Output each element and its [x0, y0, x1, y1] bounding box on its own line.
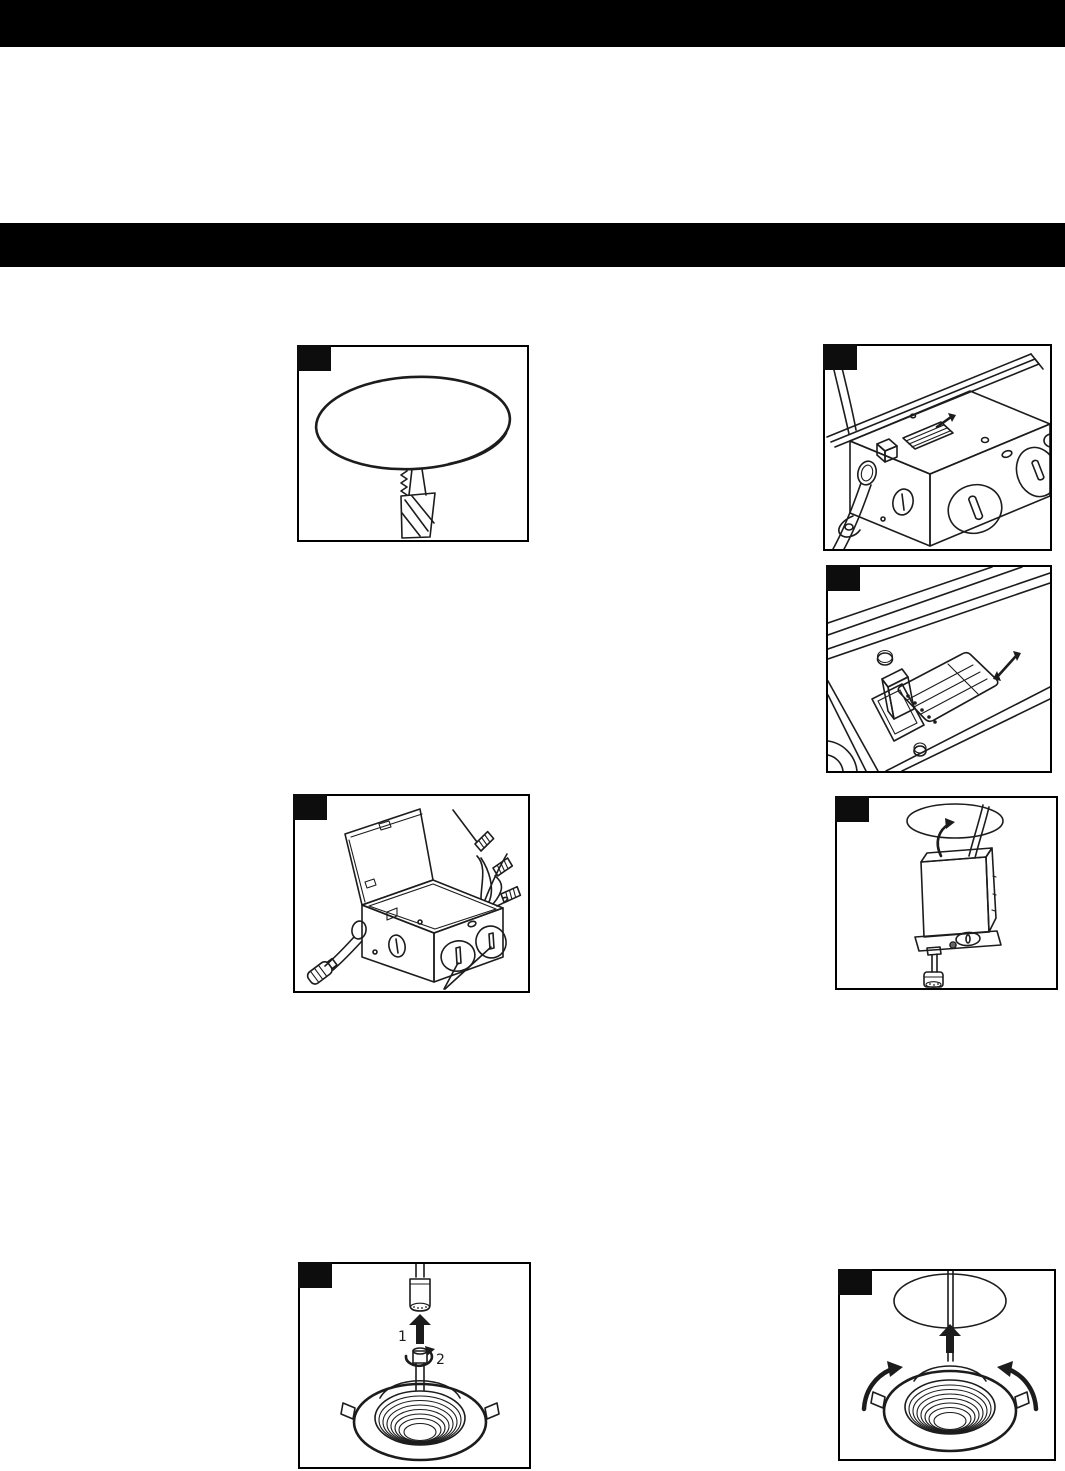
- screw-icon: [878, 653, 893, 665]
- step-badge: [293, 794, 327, 820]
- cut-hole-drawing: [299, 347, 527, 540]
- spring-clip: [871, 1392, 885, 1408]
- downlight-fixture: [871, 1366, 1029, 1451]
- step-2-label: 2: [436, 1352, 445, 1368]
- step-badge: [298, 1262, 332, 1288]
- hole-saw-drill-icon: [401, 469, 435, 538]
- switch-closeup-drawing: [828, 567, 1050, 771]
- step-badge: [835, 796, 869, 822]
- leader-line: [453, 810, 477, 842]
- step-1-label: 1: [398, 1329, 407, 1345]
- box-side: [986, 848, 996, 932]
- figure-push-downlight: [838, 1269, 1056, 1461]
- spring-clip: [485, 1403, 499, 1419]
- figure-cut-hole: [297, 345, 529, 542]
- spring-clip: [1015, 1392, 1029, 1408]
- mounting-ear: [839, 516, 860, 537]
- step-badge: [826, 565, 860, 591]
- cct-label: [903, 413, 956, 449]
- cct-table-label: [898, 653, 998, 724]
- junction-box-drawing: [825, 346, 1050, 549]
- step-badge: [297, 345, 331, 371]
- cct-switch-icon: [877, 439, 897, 462]
- box-lid: [345, 809, 433, 905]
- knockout: [1010, 442, 1050, 502]
- box-left-face: [850, 441, 930, 546]
- ceiling-hole-ellipse: [894, 1274, 1006, 1328]
- knockout: [438, 937, 479, 975]
- connector-plug-icon: [410, 1264, 430, 1311]
- step-badge: [823, 344, 857, 370]
- top-banner: [0, 0, 1065, 47]
- twist-arrow-icon: [406, 1346, 435, 1366]
- figure-switch-closeup: [826, 565, 1052, 773]
- spring-clip: [341, 1403, 355, 1419]
- figure-junction-box: [823, 344, 1052, 551]
- slide-switch-icon: [872, 669, 924, 741]
- figure-attach-downlight: 1 2: [298, 1262, 531, 1469]
- ceiling-hole-ellipse: [314, 372, 513, 474]
- figure-open-box-wiring: [293, 794, 530, 993]
- open-box-drawing: [295, 796, 528, 991]
- section-banner: [0, 223, 1065, 267]
- slide-arrow-icon: [993, 651, 1021, 681]
- box-into-ceiling-drawing: [837, 798, 1056, 988]
- step-badge: [838, 1269, 872, 1295]
- push-downlight-drawing: [840, 1271, 1054, 1459]
- figure-box-into-ceiling: [835, 796, 1058, 990]
- box-front-face: [434, 908, 503, 982]
- connector-plug-icon: [924, 947, 943, 987]
- cable-collar: [855, 459, 878, 487]
- box-front: [921, 857, 989, 937]
- box-top-face: [850, 391, 1050, 474]
- attach-downlight-drawing: 1 2: [300, 1264, 529, 1467]
- wire-nut-icon: [500, 886, 521, 903]
- knockout: [942, 478, 1008, 540]
- fixture-stem: [416, 1363, 424, 1390]
- knockout: [472, 923, 509, 962]
- connector-plug-icon: [306, 956, 339, 986]
- downlight-fixture: [341, 1381, 499, 1460]
- manual-page: { "colors": { "background": "#ffffff", "…: [0, 0, 1065, 1471]
- up-arrow-icon: [409, 1314, 431, 1344]
